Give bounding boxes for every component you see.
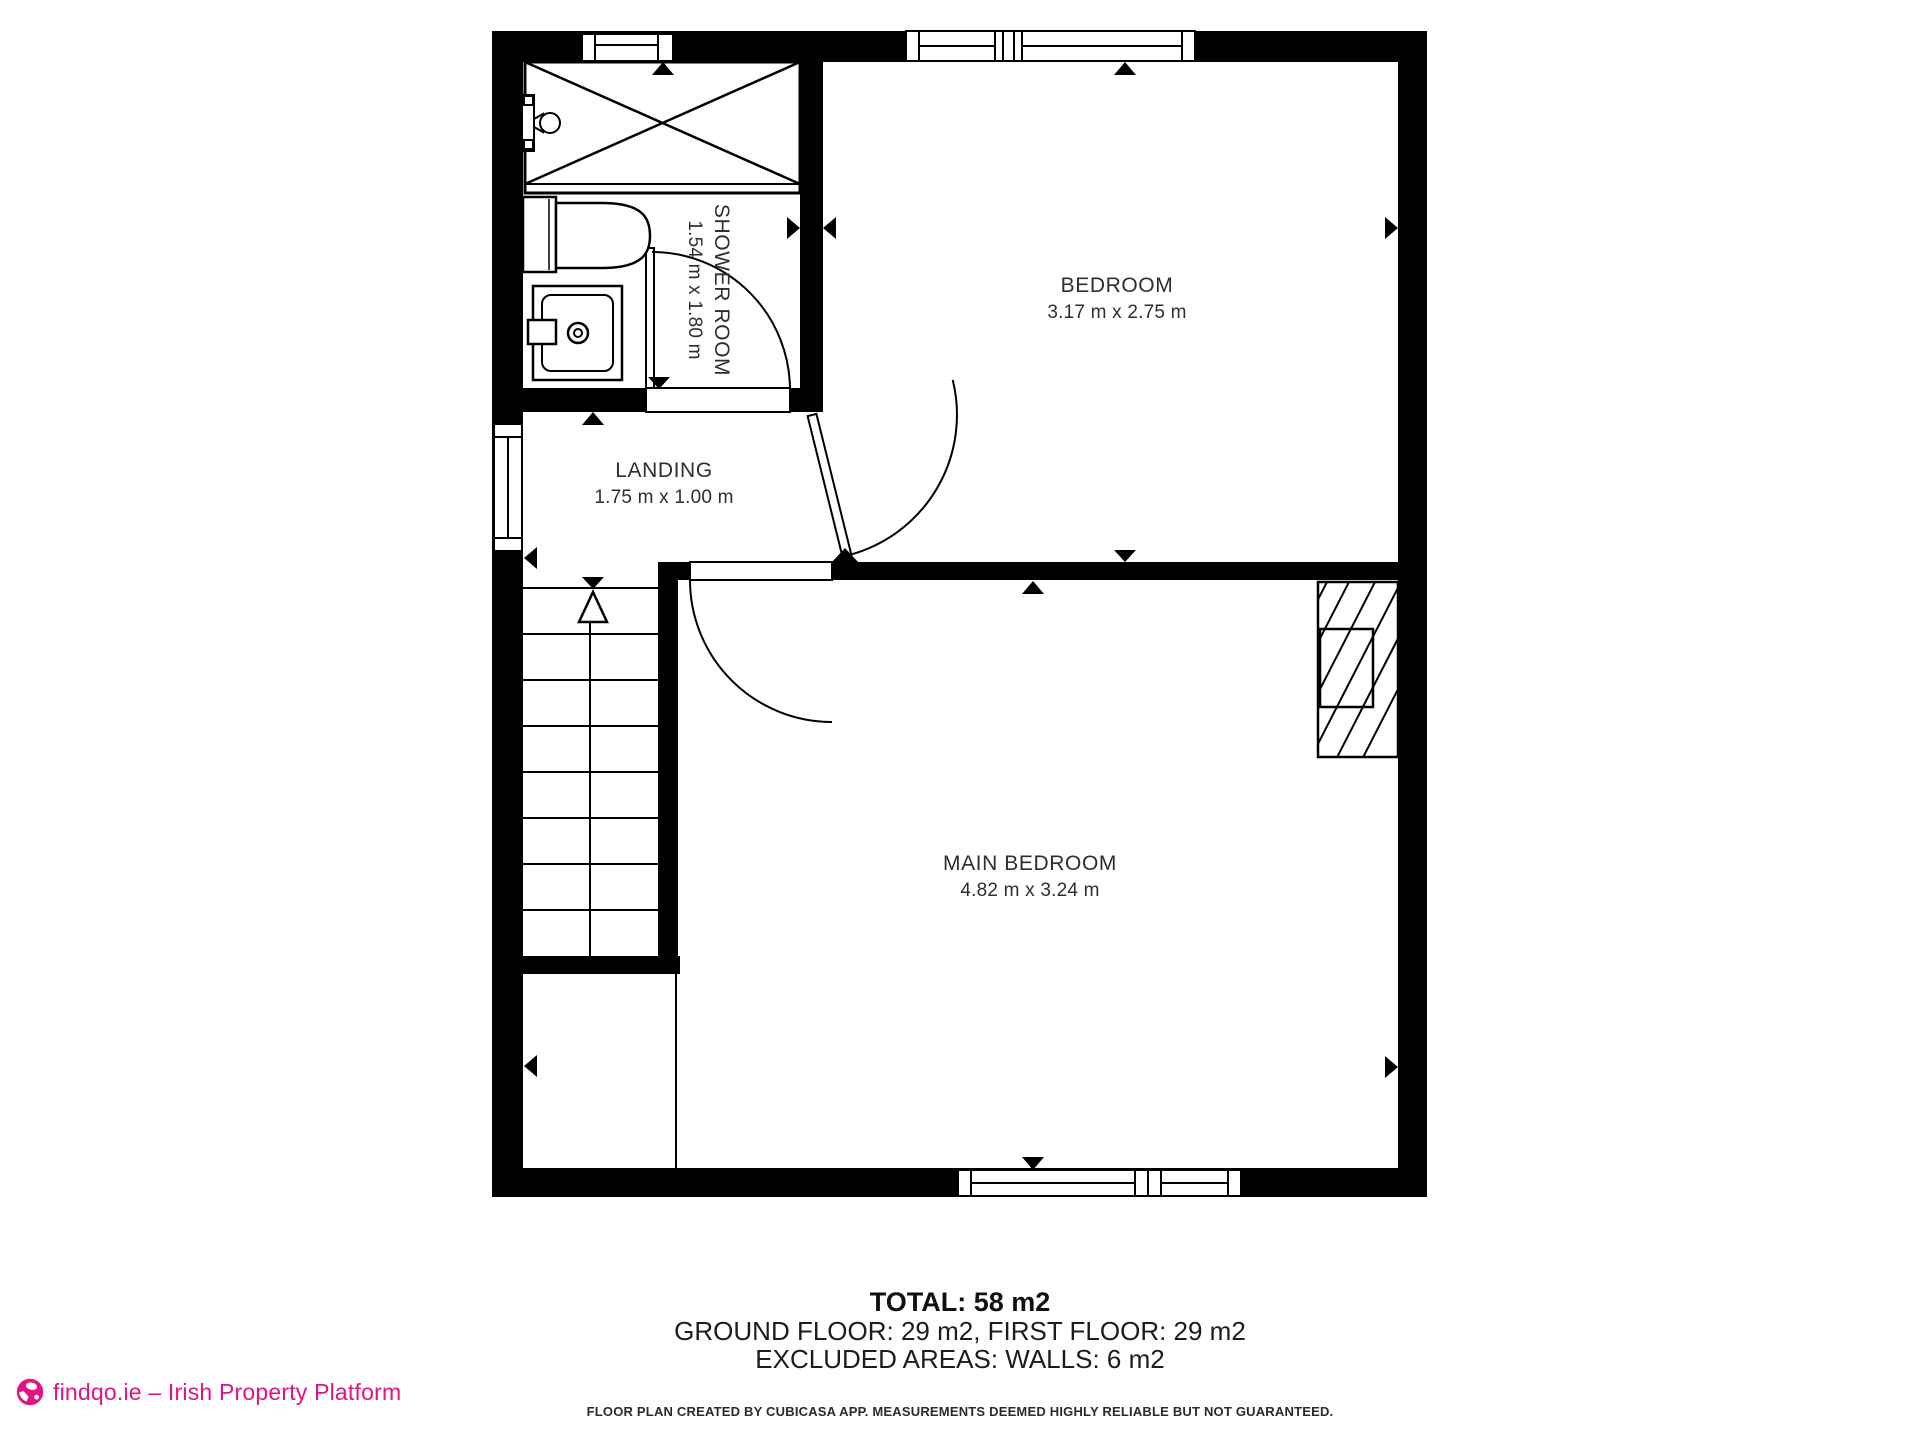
bathtub-icon [525, 62, 800, 193]
room-name: BEDROOM [1047, 272, 1186, 299]
marker-triangle-icon [1022, 581, 1044, 594]
footer-brand-text: findqo.ie – Irish Property Platform [53, 1379, 401, 1406]
marker-triangle-icon [1385, 217, 1398, 239]
disclaimer-text: FLOOR PLAN CREATED BY CUBICASA APP. MEAS… [0, 1404, 1920, 1419]
room-dimensions: 1.54 m x 1.80 m [681, 204, 708, 376]
window-shower-room-top [582, 34, 673, 61]
door-main-bedroom [690, 562, 832, 722]
room-label-bedroom: BEDROOM 3.17 m x 2.75 m [1047, 272, 1186, 326]
floor-plan-drawing [0, 0, 1920, 1440]
area-summary: TOTAL: 58 m2 GROUND FLOOR: 29 m2, FIRST … [0, 1288, 1920, 1373]
marker-triangle-icon [823, 217, 836, 239]
room-dimensions: 3.17 m x 2.75 m [1047, 299, 1186, 326]
marker-triangle-icon [524, 547, 537, 569]
room-name: SHOWER ROOM [708, 204, 735, 376]
footer-brand[interactable]: findqo.ie – Irish Property Platform [16, 1378, 401, 1406]
window-main-bedroom-bottom-left [958, 1170, 1148, 1196]
marker-triangle-icon [1385, 1056, 1398, 1078]
room-dimensions: 1.75 m x 1.00 m [594, 484, 733, 511]
marker-triangle-icon [582, 412, 604, 425]
sink-icon [528, 286, 622, 380]
wall-markers [524, 62, 1398, 1170]
stairs-up-arrow-icon [579, 592, 607, 622]
marker-triangle-icon [787, 217, 800, 239]
room-label-main-bedroom: MAIN BEDROOM 4.82 m x 3.24 m [943, 850, 1117, 904]
window-bedroom-top [906, 31, 1195, 61]
room-name: MAIN BEDROOM [943, 850, 1117, 877]
toilet-icon [523, 197, 650, 272]
marker-triangle-icon [524, 1055, 537, 1077]
fixtures [522, 62, 800, 380]
total-area-text: TOTAL: 58 m2 [0, 1288, 1920, 1317]
room-label-shower-room: SHOWER ROOM 1.54 m x 1.80 m [681, 204, 735, 376]
window-landing-left [494, 424, 522, 551]
floor-plan-page: SHOWER ROOM 1.54 m x 1.80 m BEDROOM 3.17… [0, 0, 1920, 1440]
findqo-logo-globe-icon [16, 1378, 44, 1406]
window-main-bedroom-bottom-right [1148, 1170, 1241, 1196]
marker-triangle-icon [1114, 550, 1136, 562]
room-dimensions: 4.82 m x 3.24 m [943, 877, 1117, 904]
staircase [523, 588, 676, 1168]
walls [492, 31, 1427, 1197]
floor-areas-text: GROUND FLOOR: 29 m2, FIRST FLOOR: 29 m2 [0, 1317, 1920, 1345]
room-name: LANDING [594, 457, 733, 484]
room-label-landing: LANDING 1.75 m x 1.00 m [594, 457, 733, 511]
excluded-areas-text: EXCLUDED AREAS: WALLS: 6 m2 [0, 1345, 1920, 1373]
door-bedroom [808, 380, 957, 562]
marker-triangle-icon [1114, 62, 1136, 75]
